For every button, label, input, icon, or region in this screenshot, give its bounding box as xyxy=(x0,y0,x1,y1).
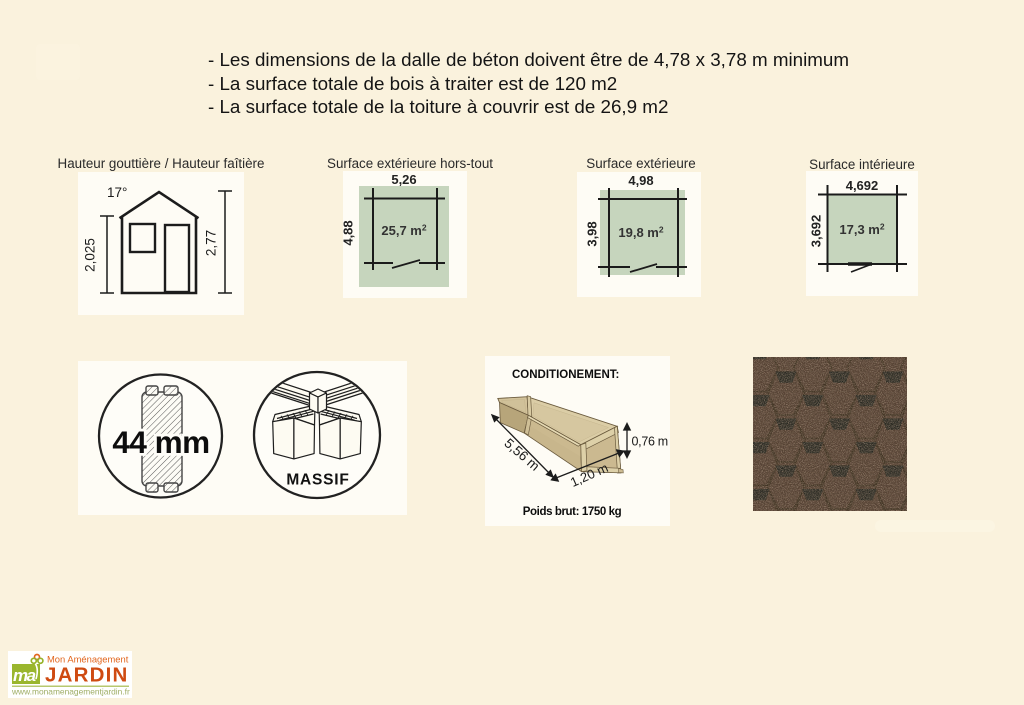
svg-text:2,025: 2,025 xyxy=(83,238,98,272)
svg-text:2,77: 2,77 xyxy=(204,230,219,256)
svg-text:5,26: 5,26 xyxy=(391,172,416,187)
svg-text:CONDITIONEMENT:: CONDITIONEMENT: xyxy=(512,369,619,381)
svg-text:3,98: 3,98 xyxy=(584,221,599,246)
svg-text:4,692: 4,692 xyxy=(846,178,879,193)
svg-text:3,692: 3,692 xyxy=(808,215,823,248)
svg-text:25,7 m2: 25,7 m2 xyxy=(381,223,426,239)
svg-text:4,98: 4,98 xyxy=(628,173,653,188)
svg-text:44 mm: 44 mm xyxy=(112,424,209,460)
svg-text:17,3 m2: 17,3 m2 xyxy=(839,222,884,238)
svg-text:ma: ma xyxy=(13,666,36,685)
svg-text:17°: 17° xyxy=(107,185,127,200)
svg-text:4,88: 4,88 xyxy=(343,220,355,245)
svg-text:MASSIF: MASSIF xyxy=(286,472,349,489)
svg-text:Poids brut: 1750 kg: Poids brut: 1750 kg xyxy=(523,506,622,518)
svg-text:JARDIN: JARDIN xyxy=(45,664,129,687)
svg-text:19,8 m2: 19,8 m2 xyxy=(618,225,663,241)
svg-text:0,76 m: 0,76 m xyxy=(632,435,668,449)
svg-text:www.monamenagementjardin.fr: www.monamenagementjardin.fr xyxy=(11,687,130,697)
